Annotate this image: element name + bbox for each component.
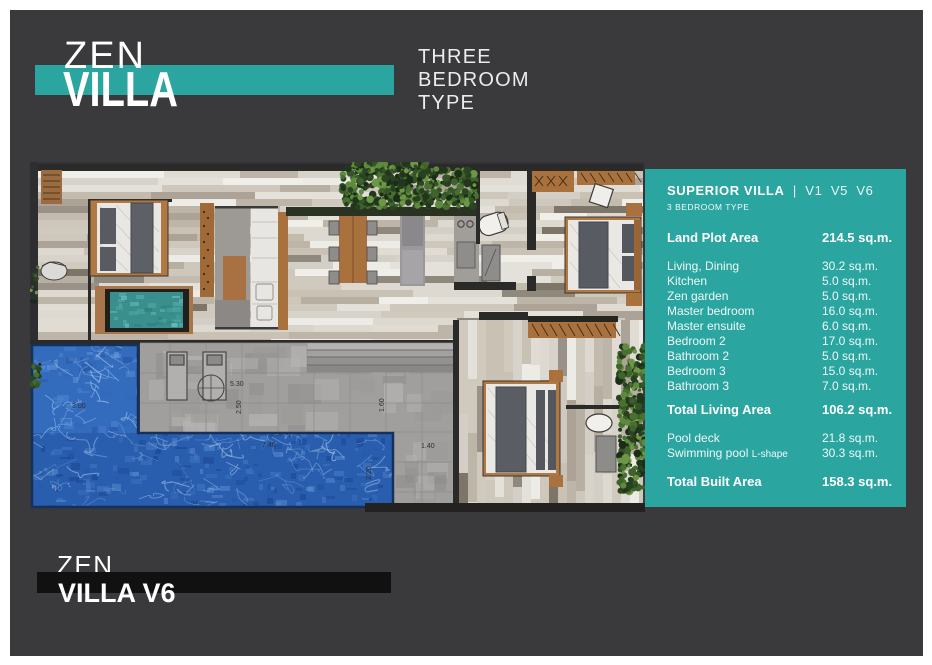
svg-text:7.40: 7.40 [262, 442, 276, 449]
svg-text:2.50: 2.50 [236, 400, 243, 414]
svg-text:5.30: 5.30 [230, 381, 244, 388]
svg-text:2.20: 2.20 [366, 466, 373, 480]
svg-text:1.40: 1.40 [421, 443, 435, 450]
svg-text:3.00: 3.00 [72, 403, 86, 410]
svg-text:1.60: 1.60 [379, 398, 386, 412]
